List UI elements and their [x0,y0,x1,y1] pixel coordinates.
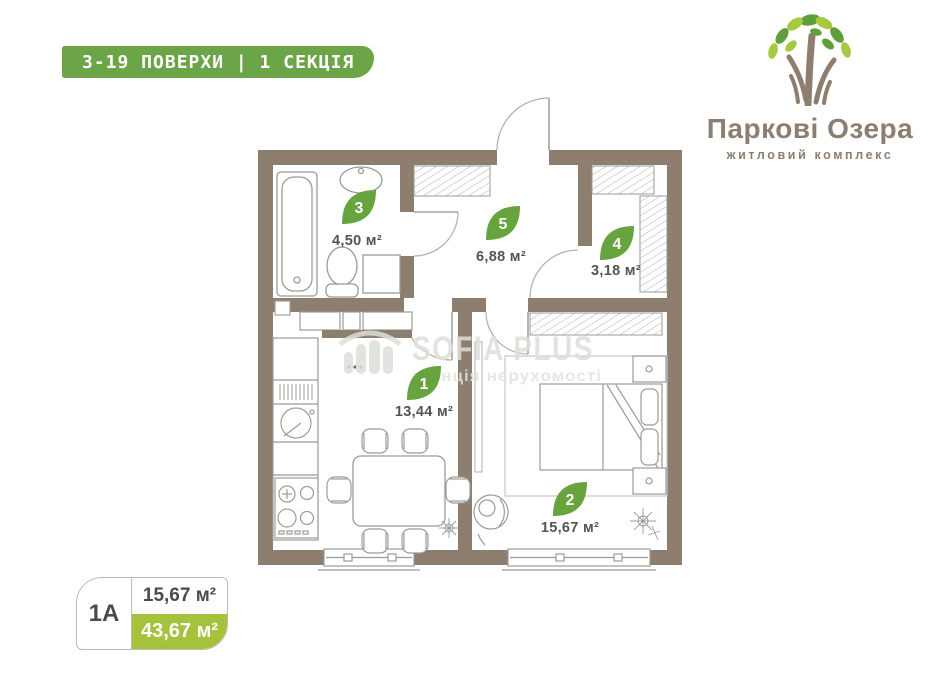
bathroom-door [414,212,458,256]
svg-text:5: 5 [499,216,508,233]
plant-bedroom [630,508,660,540]
svg-text:4: 4 [613,236,622,253]
room-marker-bathroom: 3 [342,190,376,224]
dining-table [353,456,445,526]
room-marker-hallway: 5 [486,206,520,240]
area-label-bedroom: 15,67 м² [541,520,599,536]
window-bedroom [502,549,656,570]
unit-total-area: 43,67 м² [132,614,227,650]
bathroom-sink [340,167,382,193]
bathtub [277,172,317,296]
area-label-bathroom: 4,50 м² [332,233,382,249]
washing-machine [363,255,400,293]
svg-text:3: 3 [355,200,364,217]
unit-areas: 15,67 м² 43,67 м² [132,578,227,649]
stove [275,478,318,538]
room-marker-bedroom: 2 [553,482,587,516]
entrance-door [497,98,549,150]
svg-text:1: 1 [420,376,429,393]
page: 3-19 ПОВЕРХИ | 1 СЕКЦІЯ [0,0,926,700]
area-label-kitchen: 13,44 м² [395,404,453,420]
unit-living-area: 15,67 м² [132,578,227,614]
watermark-title: SOFIA PLUS [412,330,594,368]
plant-kitchen [439,518,459,538]
room-marker-wardrobe: 4 [600,226,634,260]
toilet [326,247,358,297]
ventilation-shaft [275,301,290,315]
area-label-wardrobe: 3,18 м² [591,263,641,279]
unit-area-badge: 1А 15,67 м² 43,67 м² [76,577,228,650]
unit-code: 1А [77,578,132,649]
svg-text:2: 2 [566,492,575,509]
watermark-icon [340,333,400,374]
watermark: SOFIA PLUS агенція нерухомості [340,330,602,385]
area-label-hallway: 6,88 м² [476,249,526,265]
armchair [474,495,508,545]
wardrobe-door [530,250,578,298]
